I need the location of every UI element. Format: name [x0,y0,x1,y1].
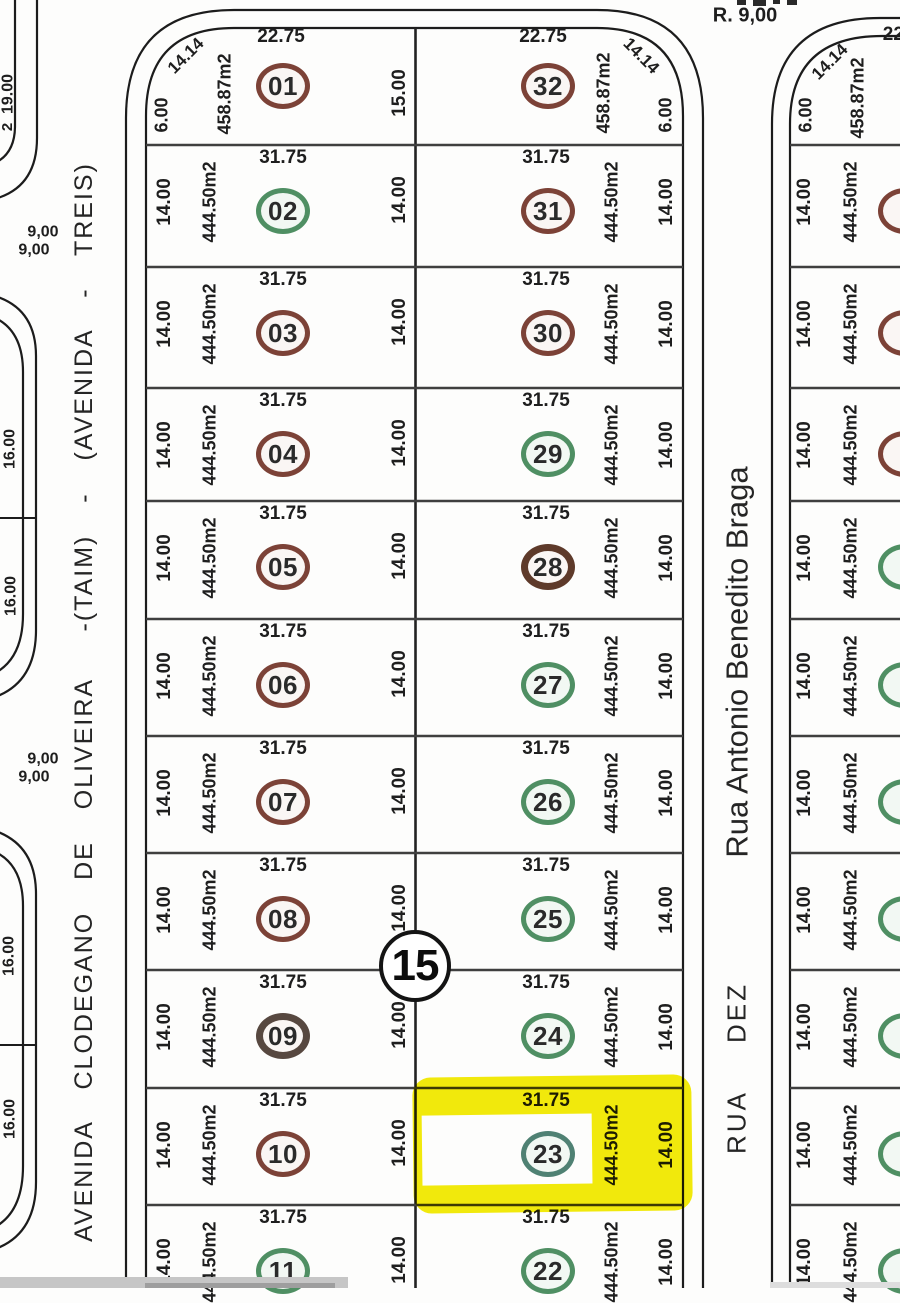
dim-lot25-area: 444.50m2 [603,869,622,950]
dim-19-00: 19.00 [1,74,18,114]
scan-artifact-bar-right [770,1282,900,1288]
dim-lot07-area: 444.50m2 [201,752,220,833]
dim-far0-west: 6.00 [797,97,816,132]
lot-26-circle: 26 [521,779,575,825]
dim-far-row-7-area: 444.50m2 [842,869,861,950]
dim-lot32-east: 6.00 [657,97,676,132]
dim-far-row-6-west: 14.00 [795,769,815,817]
dim-lot06-west: 14.00 [155,652,175,700]
dim-far-row-7-west: 14.00 [795,886,815,934]
dim-16-00-1: 16.00 [3,429,20,469]
dim-lot03-area: 444.50m2 [201,283,220,364]
dim-lot04-east: 14.00 [390,419,410,467]
lot-25-circle: 25 [521,896,575,942]
lot-03-circle: 03 [256,310,310,356]
dim-lot01-west: 6.00 [153,97,172,132]
dim-lot03-west: 14.00 [155,300,175,348]
dim-lot05-front: 31.75 [259,504,307,524]
dim-lot31-east: 14.00 [657,178,677,226]
dim-lot10-front: 31.75 [259,1091,307,1111]
lot-22-circle: 22 [521,1248,575,1294]
dim-lot10-west: 14.00 [155,1121,175,1169]
dim-lot02-east: 14.00 [390,176,410,224]
lot-06-circle: 06 [256,662,310,708]
lot-31-circle: 31 [521,188,575,234]
street-label-rua-dez: RUA DEZ [723,982,750,1154]
dim-far-row-4-west: 14.00 [795,534,815,582]
dim-lot24-area: 444.50m2 [603,986,622,1067]
dim-far-row-10-area: 444.50m2 [842,1221,861,1302]
dim-far-row-8-area: 444.50m2 [842,986,861,1067]
lot-08-circle: 08 [256,896,310,942]
dim-lot32-area: 458.87m2 [595,52,614,133]
dim-lot02-west: 14.00 [155,178,175,226]
dim-lot10-area: 444.50m2 [201,1104,220,1185]
dim-lot03-east: 14.00 [390,298,410,346]
dim-far-row-9-west: 14.00 [795,1121,815,1169]
dim-lot28-front: 31.75 [522,504,570,524]
dim-far0-front: 22. [883,25,900,45]
dim-lot24-east: 14.00 [657,1003,677,1051]
dim-far-row-6-area: 444.50m2 [842,752,861,833]
dim-far-row-5-west: 14.00 [795,652,815,700]
dim-lot02-front: 31.75 [259,148,307,168]
dim-lot08-east: 14.00 [390,884,410,932]
dim-lot11-east: 14.00 [390,1236,410,1284]
dim-lot04-west: 14.00 [155,421,175,469]
dim-lot26-east: 14.00 [657,769,677,817]
dim-lot08-west: 14.00 [155,886,175,934]
lot-24-circle: 24 [521,1013,575,1059]
dim-lot22-east: 14.00 [657,1238,677,1286]
dim-lot06-area: 444.50m2 [201,635,220,716]
dim-lot09-west: 14.00 [155,1003,175,1051]
lot-28-circle: 28 [521,544,575,590]
dim-lot28-east: 14.00 [657,534,677,582]
dim-lot24-front: 31.75 [522,973,570,993]
dim-lot07-east: 14.00 [390,767,410,815]
dim-far-row-10-west: 14.00 [795,1238,815,1286]
dim-lot06-front: 31.75 [259,622,307,642]
dim-lot09-area: 444.50m2 [201,986,220,1067]
dim-lot11-area: 444.50m2 [201,1221,220,1302]
lot-01-circle: 01 [256,63,310,109]
dim-lot01-depth: 15.00 [390,69,410,117]
lot-27-circle: 27 [521,662,575,708]
dim-far0-area: 458.87m2 [849,57,868,138]
dim-9-00-a2: 9,00 [18,243,49,260]
dim-lot29-east: 14.00 [657,421,677,469]
dim-far-row-4-area: 444.50m2 [842,517,861,598]
dim-lot09-front: 31.75 [259,973,307,993]
lot-02-circle: 02 [256,188,310,234]
dim-lot08-front: 31.75 [259,856,307,876]
dim-2-partial: 2 [0,123,16,131]
dim-far-row-2-west: 14.00 [795,300,815,348]
dim-far-row-5-area: 444.50m2 [842,635,861,716]
dim-lot26-front: 31.75 [522,739,570,759]
dim-lot30-east: 14.00 [657,300,677,348]
dim-lot01-front: 22.75 [257,27,305,47]
block-15-badge: 15 [379,930,451,1002]
dim-lot09-east: 14.00 [390,1001,410,1049]
dim-lot31-front: 31.75 [522,148,570,168]
dim-far-row-1-area: 444.50m2 [842,161,861,242]
dim-far-row-9-area: 444.50m2 [842,1104,861,1185]
dim-lot02-area: 444.50m2 [201,161,220,242]
dim-lot29-front: 31.75 [522,391,570,411]
dim-16-00-3: 16.00 [2,936,19,976]
dim-lot03-front: 31.75 [259,270,307,290]
dim-far-row-2-area: 444.50m2 [842,283,861,364]
dim-9-00-b2: 9,00 [18,770,49,787]
dim-far-row-8-west: 14.00 [795,1003,815,1051]
dim-lot05-area: 444.50m2 [201,517,220,598]
dim-lot08-area: 444.50m2 [201,869,220,950]
dim-9-00-b1: 9,00 [27,752,58,769]
dim-lot05-west: 14.00 [155,534,175,582]
dim-16-00-2: 16.00 [4,576,21,616]
scan-artifact-bar-dark [145,1283,335,1288]
dim-far-row-1-west: 14.00 [795,178,815,226]
lot-09-circle: 09 [256,1013,310,1059]
dim-lot26-area: 444.50m2 [603,752,622,833]
dim-lot25-front: 31.75 [522,856,570,876]
dim-lot30-front: 31.75 [522,270,570,290]
dim-lot05-east: 14.00 [390,532,410,580]
dim-far-row-3-area: 444.50m2 [842,404,861,485]
dim-lot10-east: 14.00 [390,1119,410,1167]
dim-lot11-front: 31.75 [259,1208,307,1228]
dim-lot30-area: 444.50m2 [603,283,622,364]
dim-lot28-area: 444.50m2 [603,517,622,598]
street-label-rua-antonio-benedito-braga: Rua Antonio Benedito Braga [722,466,755,857]
lot-04-circle: 04 [256,431,310,477]
street-label-r-9-00: R. 9,00 [713,6,777,27]
dim-lot06-east: 14.00 [390,650,410,698]
dim-lot29-area: 444.50m2 [603,404,622,485]
dim-lot04-front: 31.75 [259,391,307,411]
lot-10-circle: 10 [256,1131,310,1177]
lot-29-circle: 29 [521,431,575,477]
dim-lot32-front: 22.75 [519,27,567,47]
dim-lot01-area: 458.87m2 [216,53,235,134]
plat-map: R. 9,00 AVENIDA CLODEGANO DE OLIVEIRA -(… [0,0,900,1288]
dim-16-00-4: 16.00 [3,1099,20,1139]
dim-lot27-east: 14.00 [657,652,677,700]
dim-lot25-east: 14.00 [657,886,677,934]
dim-lot27-area: 444.50m2 [603,635,622,716]
dim-lot07-front: 31.75 [259,739,307,759]
street-label-avenida-clodegano: AVENIDA CLODEGANO DE OLIVEIRA -(TAIM) - … [71,162,97,1242]
dim-far-row-3-west: 14.00 [795,421,815,469]
highlight-lot-23 [412,1074,693,1213]
dim-9-00-a1: 9,00 [27,225,58,242]
dim-lot22-area: 444.50m2 [603,1221,622,1302]
lot-07-circle: 07 [256,779,310,825]
dim-lot04-area: 444.50m2 [201,404,220,485]
lot-32-circle: 32 [521,63,575,109]
dim-lot31-area: 444.50m2 [603,161,622,242]
lot-05-circle: 05 [256,544,310,590]
dim-lot07-west: 14.00 [155,769,175,817]
lot-30-circle: 30 [521,310,575,356]
dim-lot27-front: 31.75 [522,622,570,642]
